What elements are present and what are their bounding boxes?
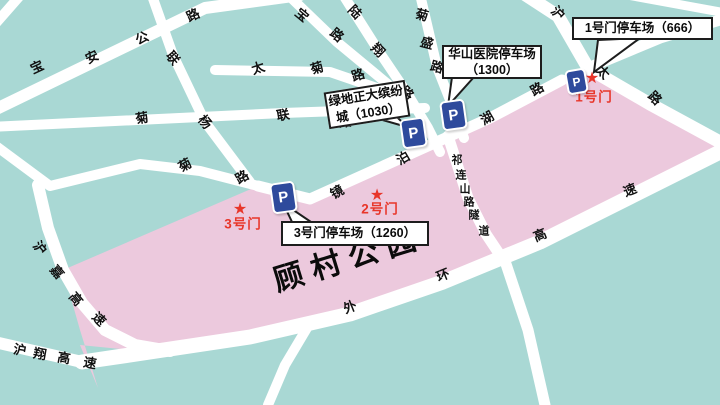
gate-label: 3号门 (224, 217, 262, 231)
callout-text-line: 华山医院停车场 (448, 46, 536, 62)
road-label-char: 道 (479, 227, 490, 238)
road-label-char: 沪 (12, 342, 27, 357)
huashan-parking-icon: P (439, 98, 468, 131)
gucun-park-map: 顾村公园 宝安公路宝路陆翔路菊盛路太菊路联杨菊联路菊路沪太路镜泊湖路祁连山路隧道… (0, 0, 720, 405)
road-label-char: 山 (460, 185, 471, 196)
map-base-layer (0, 0, 720, 405)
road-label-char: 路 (464, 198, 475, 209)
gate1-parking-icon: P (563, 67, 588, 95)
road-label-char: 高 (56, 350, 71, 365)
road-label-char: 联 (275, 107, 290, 122)
huashan-parking-label: 华山医院停车场（1300） (442, 45, 542, 79)
gate-label: 2号门 (361, 202, 399, 216)
callout-text-line: 1号门停车场（666） (585, 20, 700, 36)
gate3-parking-label: 3号门停车场（1260） (281, 221, 429, 246)
gate3-parking-icon: P (268, 180, 297, 214)
road-label-char: 连 (456, 171, 467, 182)
gate1-parking-label: 1号门停车场（666） (572, 17, 713, 40)
greenland-parking-icon: P (399, 116, 428, 149)
road-label-char: 翔 (32, 346, 47, 361)
road-label-char: 祁 (452, 156, 463, 167)
callout-text-line: 3号门停车场（1260） (294, 225, 416, 241)
callout-text-line: （1300） (466, 62, 519, 78)
road-label-char: 菊 (134, 110, 149, 125)
road-label-char: 隧 (469, 211, 480, 222)
road-label-char: 速 (82, 355, 97, 370)
